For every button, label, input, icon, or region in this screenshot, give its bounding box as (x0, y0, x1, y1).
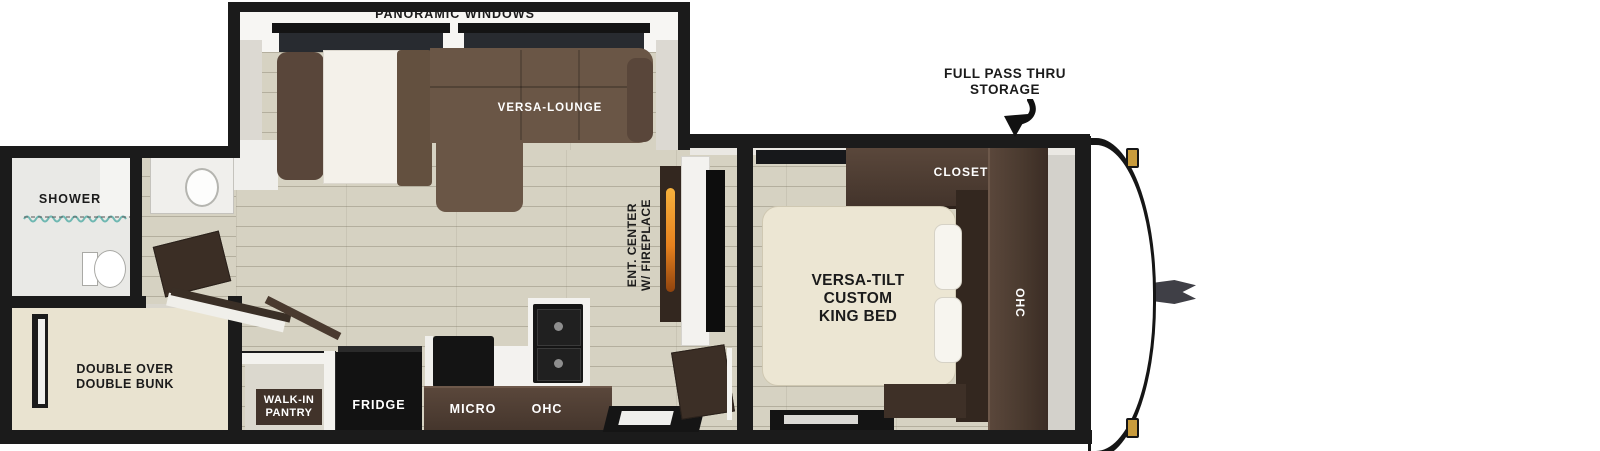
king-bed-label-line2: CUSTOM (772, 290, 944, 308)
pantry-right-wall (324, 351, 336, 431)
shower-label: SHOWER (20, 192, 120, 206)
lounge-chaise-armrest (277, 52, 324, 180)
main-bottom-wall (0, 430, 1092, 444)
panoramic-window-left-frame (272, 23, 450, 33)
shower-right-wall (130, 150, 142, 308)
microwave (433, 336, 494, 388)
fridge-label: FRIDGE (336, 398, 422, 412)
bunk-label-line2: DOUBLE BUNK (30, 377, 220, 392)
tv-panel (706, 170, 725, 332)
marker-light-top (1126, 148, 1139, 168)
fridge (336, 352, 422, 432)
pass-thru-storage-callout: FULL PASS THRU STORAGE (930, 66, 1080, 98)
bed-foot-dresser (884, 384, 966, 418)
lounge-sofa-backrest-seam (430, 86, 644, 88)
panoramic-windows-label: PANORAMIC WINDOWS (330, 7, 580, 21)
ent-center-label: ENT. CENTER W/ FIREPLACE (625, 182, 655, 308)
toilet-bowl (94, 250, 126, 288)
shower-glass-line (22, 213, 132, 225)
sink-drain-bottom (554, 359, 563, 368)
entry-door-frame (727, 348, 732, 420)
rear-top-wall (0, 146, 240, 158)
shower-bottom-wall (0, 296, 146, 308)
shower-shelf (100, 158, 130, 216)
marker-light-bottom (1126, 418, 1139, 438)
callout-arrow (1000, 99, 1040, 139)
slideout-right-wall-face (656, 40, 678, 150)
entry-door-open (671, 344, 735, 420)
fireplace-flame (666, 188, 675, 292)
pass-thru-storage-line2: STORAGE (930, 82, 1080, 98)
closet-label: CLOSET (916, 165, 1006, 179)
lounge-chaise-back (397, 50, 432, 186)
bath-sink (185, 168, 219, 207)
lounge-sofa-right-armrest (627, 58, 653, 142)
lounge-chaise-extension (436, 132, 523, 212)
bedroom-ohc-label: OHC (1013, 281, 1027, 325)
pantry-label-line2: PANTRY (256, 407, 322, 420)
entry-step-tread (618, 411, 673, 425)
ent-center-label-line1: ENT. CENTER (625, 182, 639, 308)
bunk-label-line1: DOUBLE OVER (30, 362, 220, 377)
lounge-sofa-cushion-seam-2 (578, 50, 580, 140)
ent-center-label-line2: W/ FIREPLACE (639, 182, 653, 308)
pantry-label: WALK-IN PANTRY (256, 394, 322, 420)
pantry-label-line1: WALK-IN (256, 394, 322, 407)
slideout-right-wall (678, 2, 690, 150)
floorplan-canvas: PANORAMIC WINDOWS VERSA-LOUNGE SHOWER DO… (0, 0, 1600, 451)
rear-left-wall (0, 146, 12, 444)
kitchen-ohc-label: OHC (514, 402, 580, 416)
king-bed-label-line3: KING BED (772, 308, 944, 326)
front-storage-wall (1075, 136, 1091, 444)
pass-thru-storage-line1: FULL PASS THRU (930, 66, 1080, 82)
slideout-left-wall (228, 2, 240, 150)
micro-label: MICRO (437, 402, 509, 416)
king-bed-label: VERSA-TILT CUSTOM KING BED (772, 272, 944, 326)
lounge-sofa-main (430, 48, 653, 143)
bedroom-divider-wall (737, 146, 753, 444)
lounge-sofa-cushion-seam-1 (520, 50, 522, 140)
front-storage-floor (1044, 146, 1075, 434)
panoramic-window-right-frame (458, 23, 650, 33)
bunk-label: DOUBLE OVER DOUBLE BUNK (30, 362, 220, 392)
kitchen-counter-lower (494, 346, 530, 388)
versa-lounge-label: VERSA-LOUNGE (470, 102, 630, 114)
slideout-left-wall-face (240, 40, 262, 150)
sink-drain-top (554, 322, 563, 331)
pantry-top-wall (236, 351, 334, 364)
king-bed-label-line1: VERSA-TILT (772, 272, 944, 290)
bedroom-floor-mat-inner (784, 415, 858, 424)
front-cap (1088, 138, 1156, 451)
counter-edge-strip (425, 336, 433, 388)
lounge-chaise-mattress (323, 50, 401, 184)
